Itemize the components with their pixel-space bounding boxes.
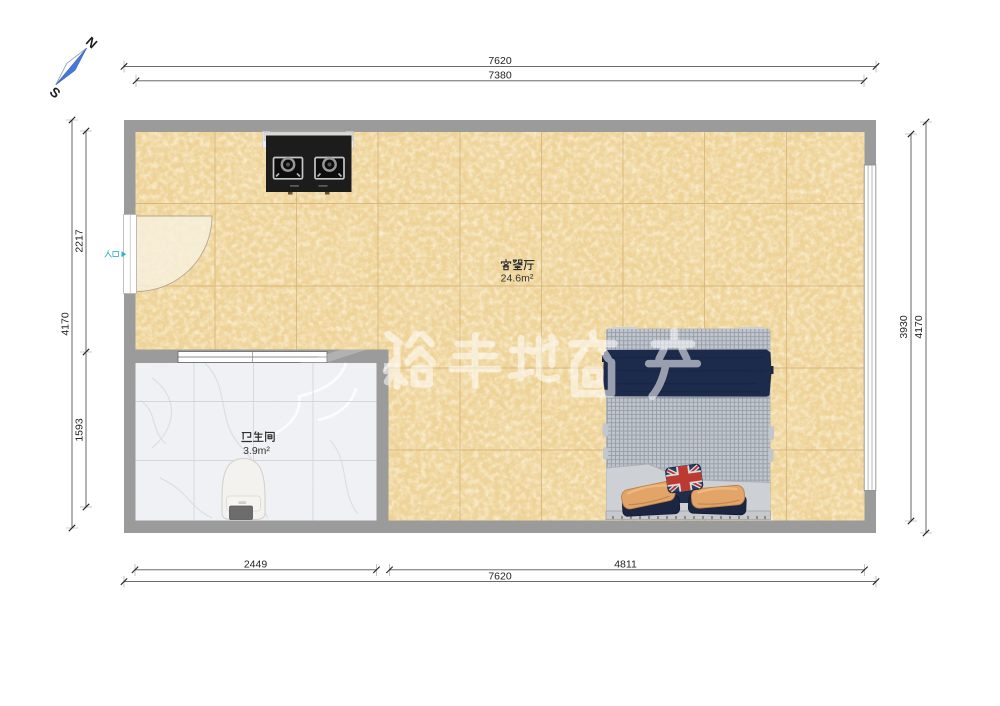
- svg-text:4811: 4811: [614, 559, 637, 571]
- svg-text:7620: 7620: [488, 571, 512, 583]
- svg-text:3.9m²: 3.9m²: [243, 445, 270, 457]
- svg-text:3930: 3930: [898, 315, 910, 339]
- svg-text:4170: 4170: [913, 315, 925, 339]
- svg-text:7380: 7380: [488, 70, 512, 82]
- svg-text:2449: 2449: [244, 559, 268, 571]
- svg-text:24.6m²: 24.6m²: [501, 273, 534, 285]
- svg-text:2217: 2217: [74, 229, 86, 253]
- svg-text:7620: 7620: [488, 55, 512, 67]
- svg-text:4170: 4170: [60, 312, 72, 336]
- svg-text:1593: 1593: [74, 418, 86, 442]
